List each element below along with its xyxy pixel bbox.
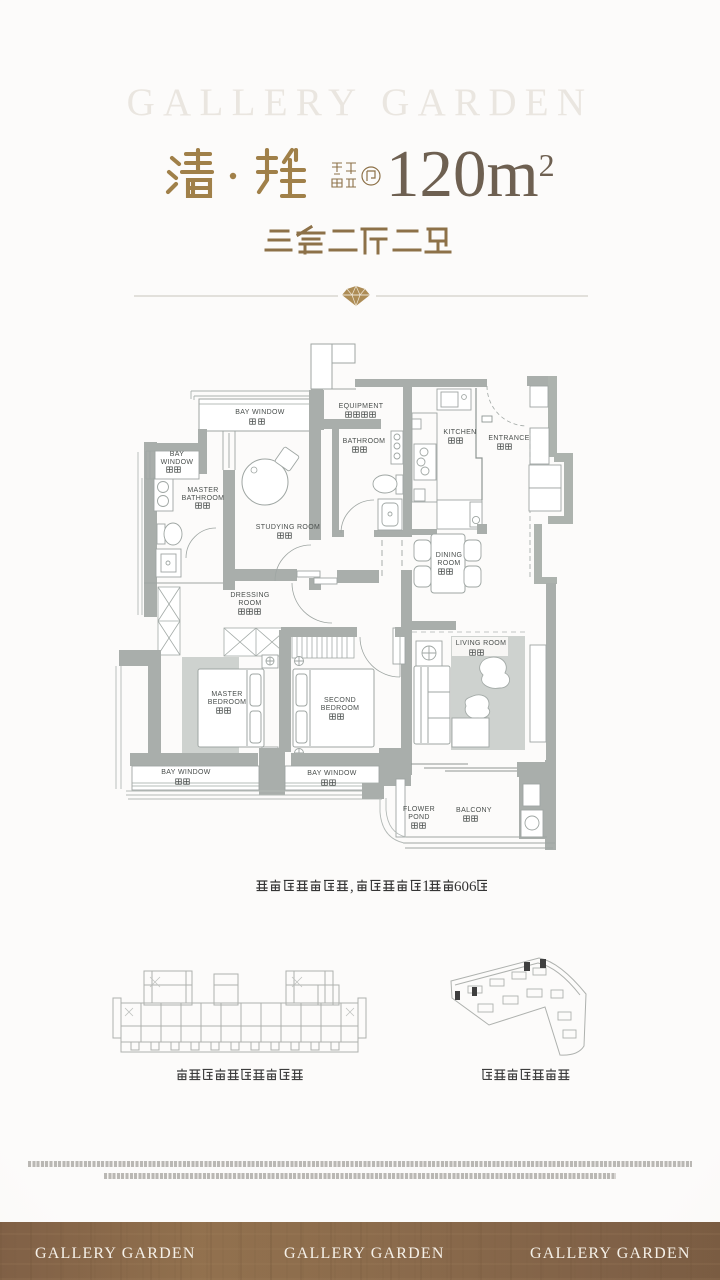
svg-text:,: ,: [350, 879, 354, 895]
svg-text:KITCHEN: KITCHEN: [443, 429, 476, 436]
svg-text:ROOM: ROOM: [238, 600, 261, 607]
svg-text:BEDROOM: BEDROOM: [321, 705, 360, 712]
svg-text:STUDYING ROOM: STUDYING ROOM: [256, 524, 320, 531]
svg-text:LIVING ROOM: LIVING ROOM: [456, 640, 507, 647]
svg-text:606: 606: [454, 879, 477, 895]
svg-text:DRESSING: DRESSING: [230, 592, 269, 599]
svg-text:FLOWER: FLOWER: [403, 806, 435, 813]
svg-text:BAY WINDOW: BAY WINDOW: [235, 409, 285, 416]
svg-text:ROOM: ROOM: [437, 560, 460, 567]
svg-text:BALCONY: BALCONY: [456, 807, 492, 814]
svg-text:BATHROOM: BATHROOM: [343, 438, 386, 445]
svg-text:POND: POND: [408, 814, 430, 821]
svg-text:BAY WINDOW: BAY WINDOW: [307, 770, 357, 777]
svg-text:BATHROOM: BATHROOM: [182, 495, 225, 502]
svg-text:1: 1: [422, 878, 430, 895]
svg-text:ENTRANCE: ENTRANCE: [488, 435, 529, 442]
svg-text:BAY WINDOW: BAY WINDOW: [161, 769, 211, 776]
svg-text:WINDOW: WINDOW: [161, 459, 194, 466]
svg-text:DINING: DINING: [436, 552, 463, 559]
svg-text:MASTER: MASTER: [211, 691, 242, 698]
svg-text:MASTER: MASTER: [187, 487, 218, 494]
svg-text:EQUIPMENT: EQUIPMENT: [339, 403, 384, 410]
svg-text:SECOND: SECOND: [324, 697, 356, 704]
svg-text:BAY: BAY: [170, 451, 185, 458]
svg-text:BEDROOM: BEDROOM: [208, 699, 247, 706]
